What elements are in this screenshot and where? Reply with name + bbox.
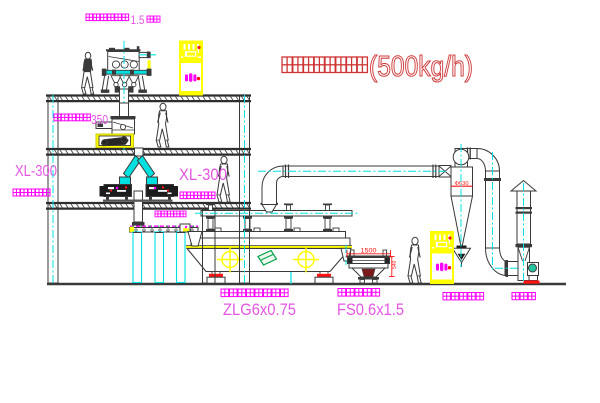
svg-text:540: 540 — [392, 260, 398, 269]
svg-text:(500kg/h): (500kg/h) — [369, 51, 473, 83]
svg-text:XL-300: XL-300 — [15, 163, 57, 180]
svg-text:ZLG6x0.75: ZLG6x0.75 — [223, 300, 296, 319]
svg-text:1500: 1500 — [361, 249, 378, 255]
svg-text:1.5: 1.5 — [131, 13, 145, 27]
svg-text:XL-300: XL-300 — [179, 165, 227, 184]
svg-text:350: 350 — [91, 112, 108, 127]
svg-text:FS0.6x1.5: FS0.6x1.5 — [337, 300, 404, 319]
svg-text:Φ630: Φ630 — [455, 181, 469, 187]
